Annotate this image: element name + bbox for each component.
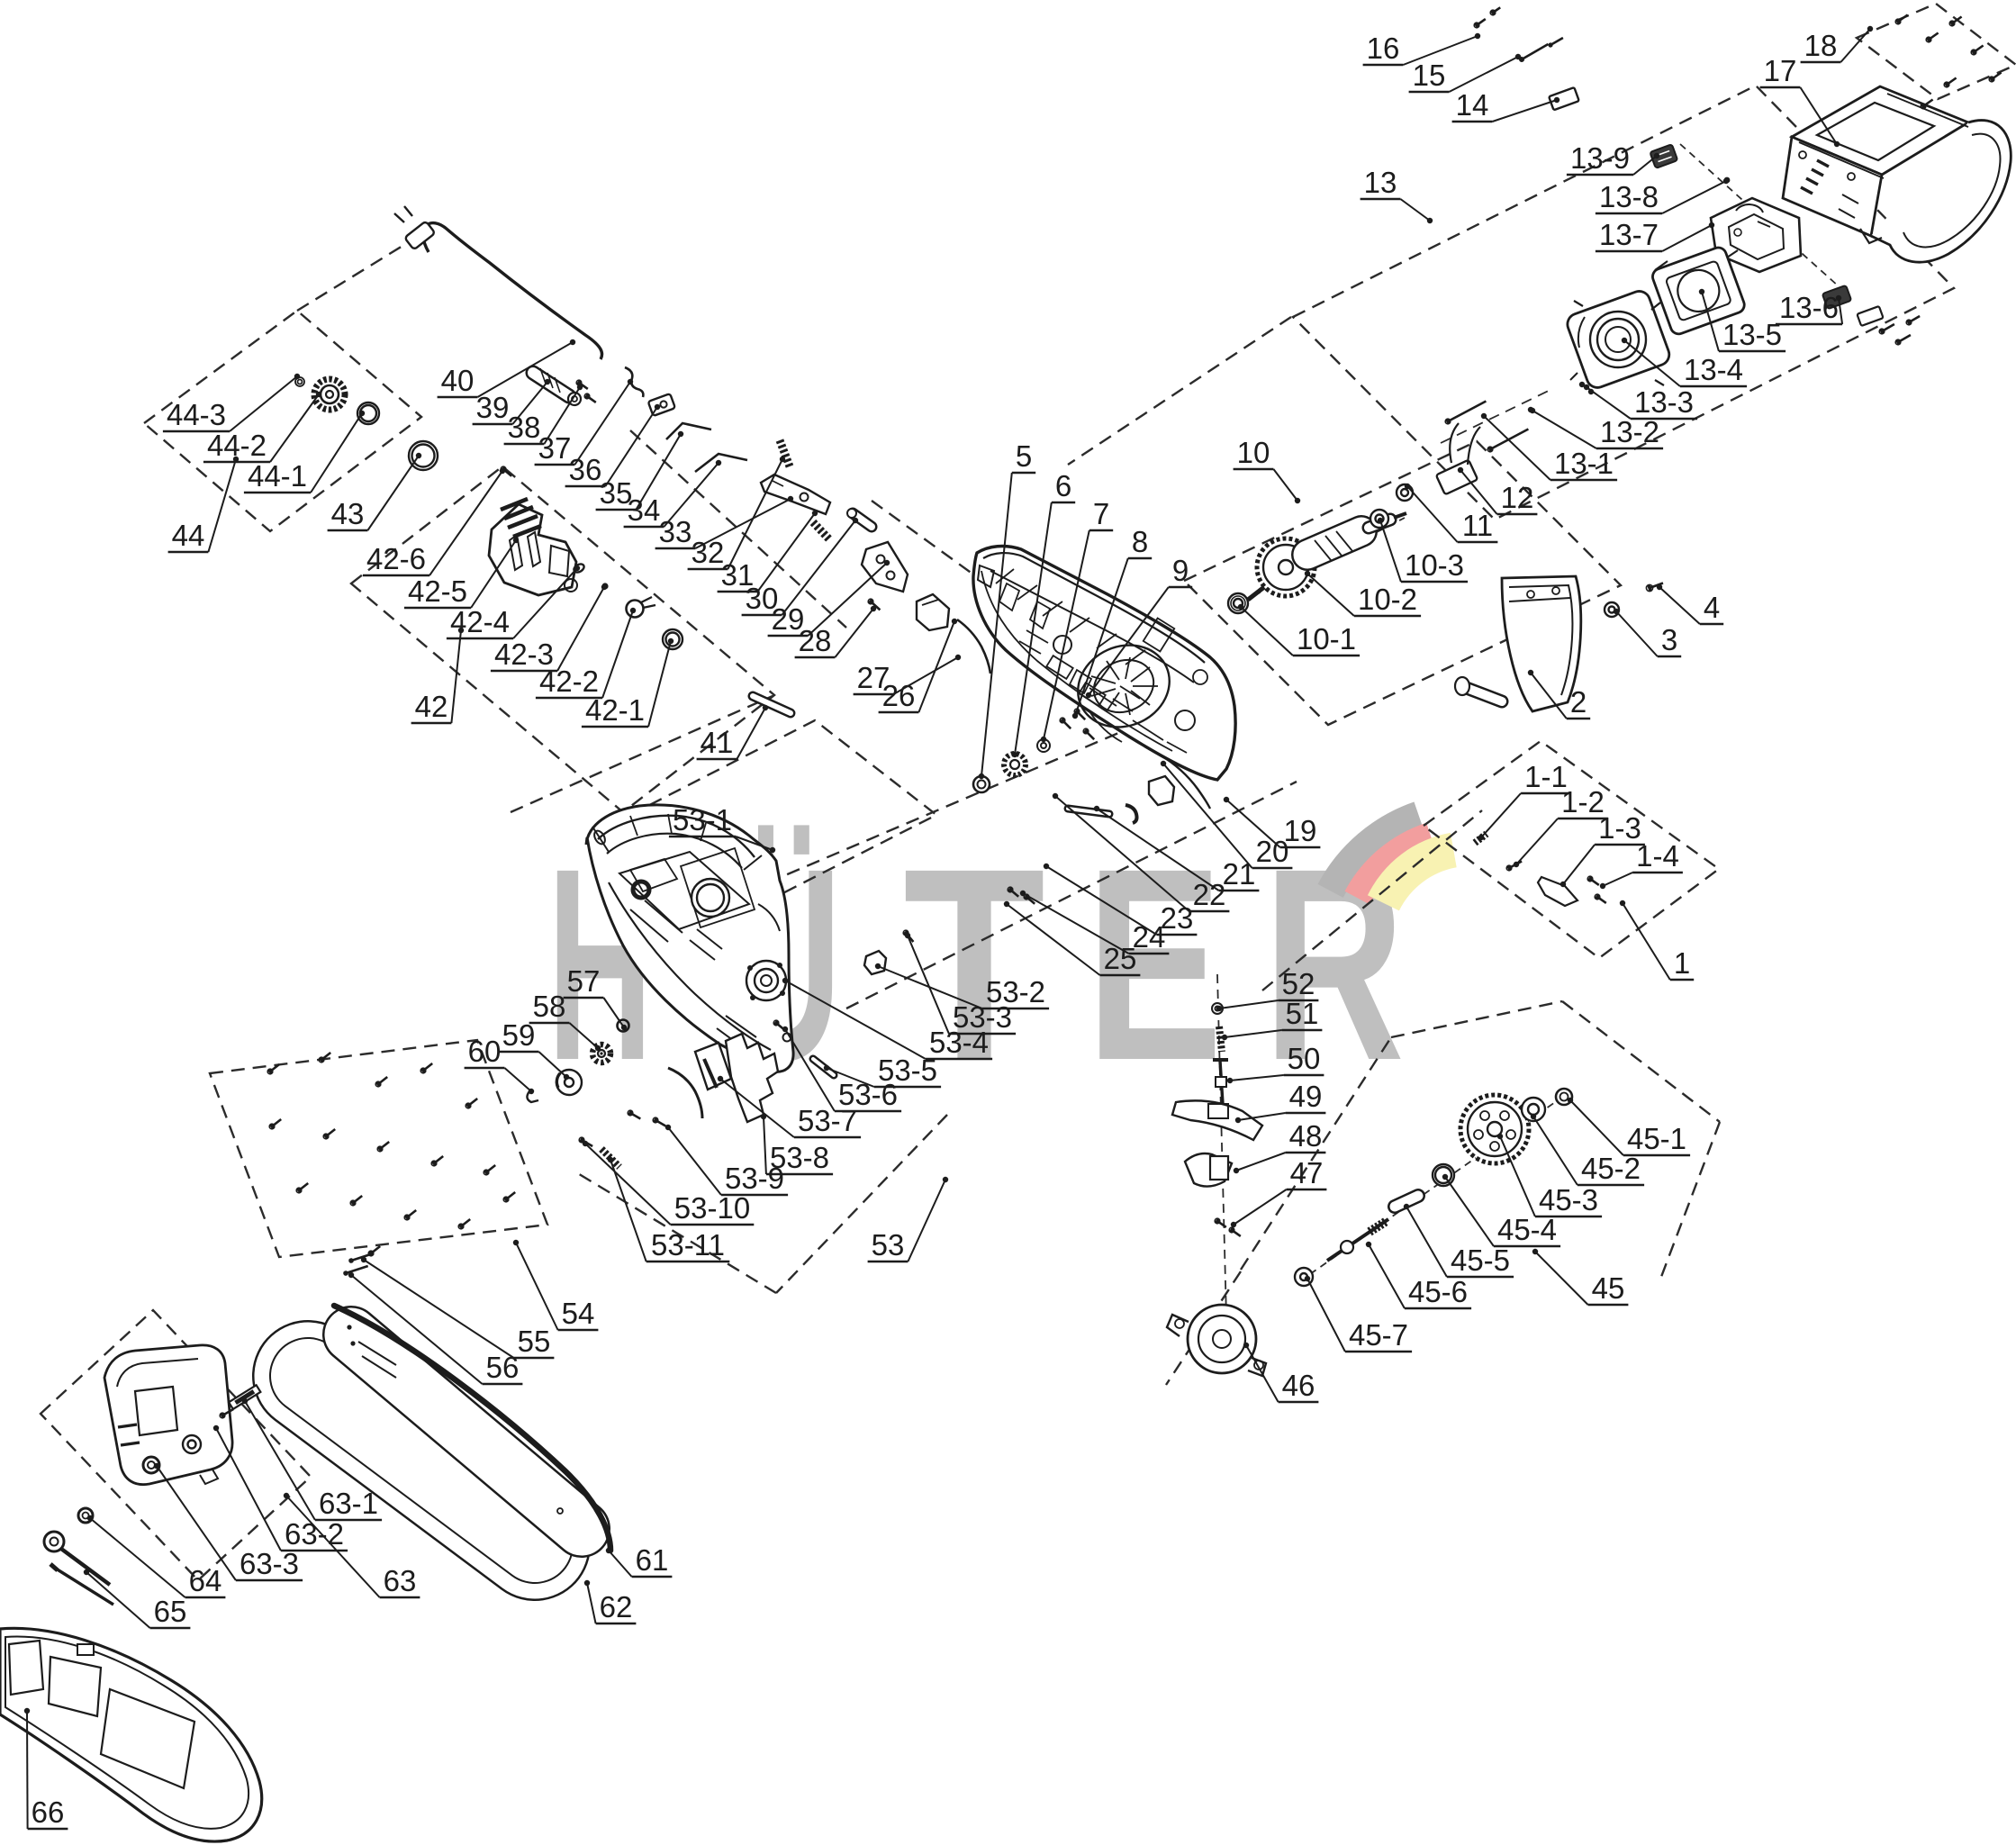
svg-text:13-9: 13-9 xyxy=(1570,141,1630,175)
svg-text:60: 60 xyxy=(468,1035,502,1068)
svg-text:42-4: 42-4 xyxy=(450,605,510,638)
svg-text:50: 50 xyxy=(1288,1042,1321,1075)
svg-text:44-1: 44-1 xyxy=(248,459,307,493)
svg-text:13-5: 13-5 xyxy=(1722,318,1782,351)
svg-text:63-3: 63-3 xyxy=(240,1547,299,1580)
svg-text:13-3: 13-3 xyxy=(1634,385,1694,419)
svg-text:44-2: 44-2 xyxy=(207,429,267,462)
svg-text:25: 25 xyxy=(1104,942,1137,975)
svg-text:66: 66 xyxy=(32,1795,65,1829)
svg-text:45-1: 45-1 xyxy=(1627,1122,1686,1155)
svg-text:27: 27 xyxy=(857,661,890,694)
svg-text:9: 9 xyxy=(1172,554,1189,587)
svg-text:36: 36 xyxy=(569,453,602,486)
svg-text:12: 12 xyxy=(1501,481,1534,514)
svg-text:35: 35 xyxy=(600,476,633,510)
svg-text:53-7: 53-7 xyxy=(798,1104,857,1137)
svg-text:45-2: 45-2 xyxy=(1581,1152,1641,1185)
svg-text:48: 48 xyxy=(1289,1119,1323,1153)
svg-text:15: 15 xyxy=(1413,59,1446,92)
svg-text:45-5: 45-5 xyxy=(1451,1244,1510,1277)
svg-text:42: 42 xyxy=(415,690,448,723)
svg-text:40: 40 xyxy=(441,364,475,397)
svg-text:53-4: 53-4 xyxy=(929,1026,989,1059)
svg-text:45-3: 45-3 xyxy=(1539,1183,1598,1216)
svg-text:13-7: 13-7 xyxy=(1599,218,1659,251)
svg-text:13: 13 xyxy=(1364,166,1397,199)
svg-text:11: 11 xyxy=(1462,509,1493,542)
svg-text:5: 5 xyxy=(1016,439,1032,473)
svg-text:44: 44 xyxy=(172,519,205,552)
svg-text:57: 57 xyxy=(567,964,601,998)
svg-text:37: 37 xyxy=(538,431,572,465)
svg-text:10: 10 xyxy=(1237,436,1270,469)
svg-text:53-10: 53-10 xyxy=(674,1191,750,1225)
svg-text:56: 56 xyxy=(486,1351,520,1384)
svg-text:52: 52 xyxy=(1282,967,1315,1000)
svg-text:14: 14 xyxy=(1456,88,1489,122)
svg-text:13-2: 13-2 xyxy=(1600,415,1659,448)
svg-text:44-3: 44-3 xyxy=(167,398,226,431)
svg-text:42-5: 42-5 xyxy=(408,574,467,608)
svg-text:13-6: 13-6 xyxy=(1779,291,1839,324)
svg-text:54: 54 xyxy=(562,1297,595,1330)
svg-text:53: 53 xyxy=(872,1228,905,1262)
svg-text:7: 7 xyxy=(1093,497,1109,530)
svg-text:63-1: 63-1 xyxy=(319,1487,378,1520)
svg-text:13-4: 13-4 xyxy=(1684,353,1743,386)
svg-text:42-3: 42-3 xyxy=(494,638,554,671)
svg-text:20: 20 xyxy=(1256,835,1289,868)
svg-text:21: 21 xyxy=(1223,857,1256,891)
svg-text:17: 17 xyxy=(1764,54,1797,87)
svg-text:59: 59 xyxy=(502,1018,536,1052)
svg-text:10-1: 10-1 xyxy=(1297,622,1356,656)
svg-text:63: 63 xyxy=(384,1564,417,1597)
svg-text:65: 65 xyxy=(154,1595,187,1628)
svg-text:53-9: 53-9 xyxy=(725,1162,784,1195)
svg-text:38: 38 xyxy=(508,411,541,444)
svg-text:10-2: 10-2 xyxy=(1358,583,1417,616)
svg-text:61: 61 xyxy=(636,1543,669,1577)
svg-text:33: 33 xyxy=(659,515,692,548)
svg-text:55: 55 xyxy=(518,1325,551,1358)
svg-text:1-3: 1-3 xyxy=(1598,811,1641,845)
svg-text:46: 46 xyxy=(1282,1369,1315,1402)
svg-text:1: 1 xyxy=(1674,946,1690,980)
svg-text:43: 43 xyxy=(331,497,365,530)
svg-text:58: 58 xyxy=(533,990,566,1023)
svg-text:49: 49 xyxy=(1289,1080,1323,1113)
svg-text:8: 8 xyxy=(1132,525,1148,558)
svg-text:63-2: 63-2 xyxy=(285,1517,344,1551)
svg-text:13-8: 13-8 xyxy=(1599,180,1659,213)
svg-text:24: 24 xyxy=(1133,920,1166,954)
svg-text:31: 31 xyxy=(721,558,755,592)
svg-text:32: 32 xyxy=(692,536,725,569)
svg-text:10-3: 10-3 xyxy=(1405,548,1464,582)
svg-text:45-7: 45-7 xyxy=(1349,1318,1408,1352)
svg-text:62: 62 xyxy=(600,1590,633,1623)
svg-text:16: 16 xyxy=(1367,32,1400,65)
svg-text:64: 64 xyxy=(189,1564,222,1597)
svg-text:45-6: 45-6 xyxy=(1408,1275,1468,1308)
svg-text:51: 51 xyxy=(1286,997,1319,1030)
svg-text:2: 2 xyxy=(1570,685,1587,719)
svg-text:1-4: 1-4 xyxy=(1636,839,1679,873)
svg-text:18: 18 xyxy=(1804,29,1838,62)
svg-text:45-4: 45-4 xyxy=(1497,1213,1557,1246)
svg-text:41: 41 xyxy=(701,726,734,759)
svg-text:3: 3 xyxy=(1661,623,1677,656)
svg-text:53-1: 53-1 xyxy=(673,803,732,837)
svg-text:22: 22 xyxy=(1193,878,1226,911)
svg-text:47: 47 xyxy=(1290,1156,1324,1189)
svg-text:45: 45 xyxy=(1592,1271,1625,1305)
svg-text:53-11: 53-11 xyxy=(651,1228,725,1262)
svg-text:13-1: 13-1 xyxy=(1554,447,1614,480)
svg-text:4: 4 xyxy=(1704,591,1720,624)
svg-text:42-6: 42-6 xyxy=(366,542,426,575)
svg-text:6: 6 xyxy=(1055,469,1071,502)
